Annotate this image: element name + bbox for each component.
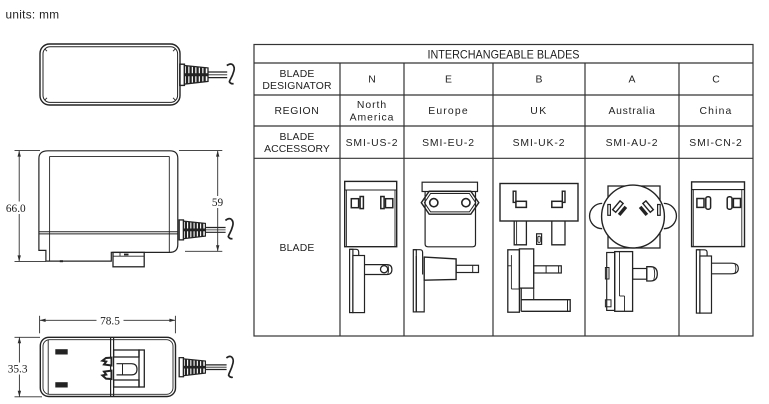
svg-text:North: North — [357, 100, 387, 111]
svg-text:78.5: 78.5 — [100, 315, 120, 327]
svg-text:SMI-EU-2: SMI-EU-2 — [422, 138, 475, 149]
svg-text:SMI-US-2: SMI-US-2 — [346, 138, 399, 149]
svg-text:Europe: Europe — [428, 106, 469, 117]
svg-text:BLADE: BLADE — [279, 69, 314, 80]
svg-text:N: N — [368, 75, 376, 86]
svg-text:UK: UK — [530, 106, 547, 117]
svg-text:C: C — [712, 75, 720, 86]
svg-text:DESIGNATOR: DESIGNATOR — [262, 81, 332, 92]
svg-text:59: 59 — [212, 197, 224, 209]
svg-text:35.3: 35.3 — [8, 363, 28, 375]
svg-text:66.0: 66.0 — [6, 203, 26, 215]
svg-text:Australia: Australia — [609, 106, 656, 117]
svg-text:America: America — [350, 112, 395, 123]
svg-text:REGION: REGION — [275, 106, 320, 117]
svg-text:E: E — [445, 75, 452, 86]
svg-text:units: mm: units: mm — [6, 7, 60, 21]
svg-text:INTERCHANGEABLE BLADES: INTERCHANGEABLE BLADES — [428, 48, 580, 62]
svg-text:SMI-UK-2: SMI-UK-2 — [513, 138, 566, 149]
svg-text:SMI-CN-2: SMI-CN-2 — [689, 138, 742, 149]
svg-text:A: A — [629, 75, 636, 86]
svg-text:ACCESSORY: ACCESSORY — [264, 144, 330, 155]
svg-text:BLADE: BLADE — [279, 132, 314, 143]
svg-text:China: China — [700, 106, 733, 117]
svg-text:B: B — [536, 75, 543, 86]
svg-text:SMI-AU-2: SMI-AU-2 — [606, 138, 659, 149]
svg-text:BLADE: BLADE — [279, 243, 314, 254]
